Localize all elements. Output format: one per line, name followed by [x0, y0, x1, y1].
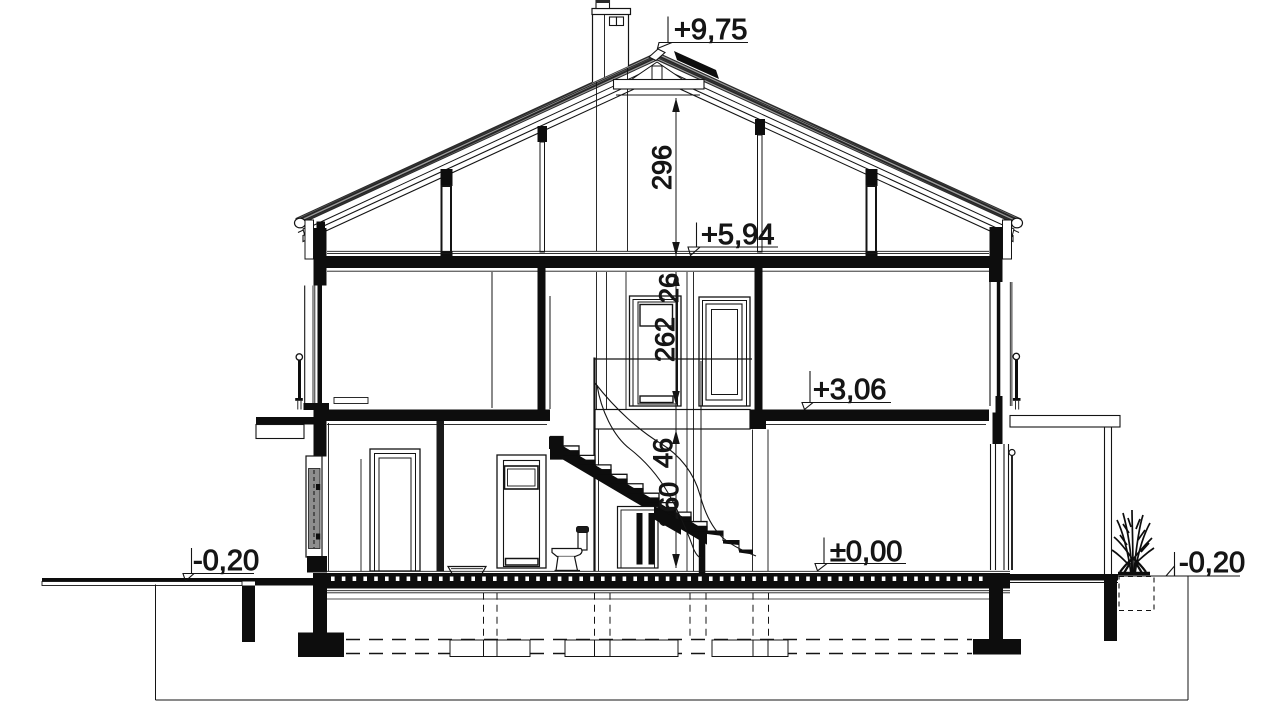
- svg-text:46: 46: [648, 438, 678, 468]
- svg-text:+5,94: +5,94: [701, 219, 774, 251]
- svg-text:-0,20: -0,20: [1179, 547, 1245, 579]
- svg-text:296: 296: [647, 145, 677, 190]
- svg-text:±0,00: ±0,00: [830, 536, 902, 568]
- svg-text:262: 262: [650, 317, 680, 362]
- svg-text:+3,06: +3,06: [813, 374, 886, 406]
- svg-text:+9,75: +9,75: [674, 14, 747, 46]
- svg-text:-0,20: -0,20: [193, 545, 259, 577]
- svg-text:26: 26: [654, 273, 684, 303]
